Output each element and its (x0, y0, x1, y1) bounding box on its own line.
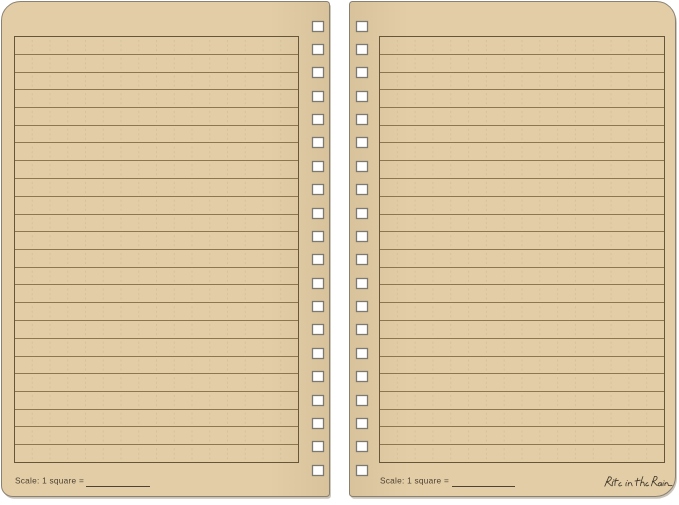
svg-text:Scale: 1 square =: Scale: 1 square = (15, 476, 84, 486)
svg-text:Scale: 1 square =: Scale: 1 square = (380, 476, 449, 486)
